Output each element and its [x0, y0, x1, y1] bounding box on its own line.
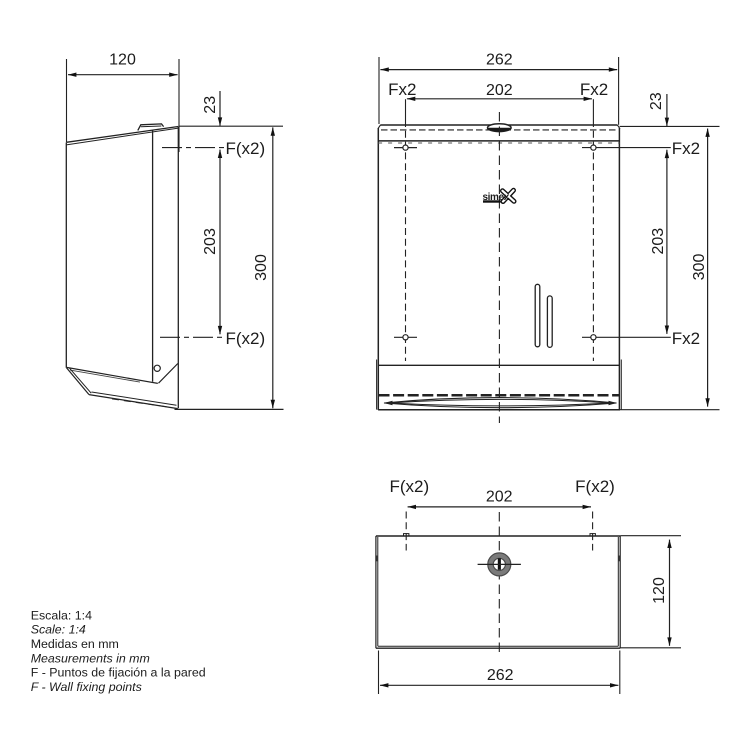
svg-text:203: 203: [202, 228, 219, 255]
svg-text:F(x2): F(x2): [389, 477, 429, 496]
svg-text:120: 120: [109, 51, 136, 68]
svg-text:Scale: 1:4: Scale: 1:4: [31, 623, 86, 637]
svg-text:Medidas en mm: Medidas en mm: [31, 637, 119, 651]
svg-text:262: 262: [486, 51, 513, 68]
svg-text:F - Wall fixing points: F - Wall fixing points: [31, 680, 142, 694]
svg-text:300: 300: [691, 254, 708, 281]
svg-text:F(x2): F(x2): [575, 477, 615, 496]
svg-text:203: 203: [650, 228, 667, 255]
svg-text:23: 23: [648, 92, 665, 110]
svg-text:Measurements in mm: Measurements in mm: [31, 651, 150, 665]
svg-text:23: 23: [202, 96, 219, 114]
svg-text:F(x2): F(x2): [226, 139, 266, 158]
svg-text:F(x2): F(x2): [226, 329, 266, 348]
svg-text:Fx2: Fx2: [672, 139, 700, 158]
svg-text:Fx2: Fx2: [672, 329, 700, 348]
svg-text:120: 120: [651, 577, 668, 604]
svg-text:300: 300: [253, 254, 270, 281]
svg-text:Escala: 1:4: Escala: 1:4: [31, 608, 92, 622]
svg-text:202: 202: [486, 82, 513, 99]
svg-text:Fx2: Fx2: [388, 80, 416, 99]
svg-text:F - Puntos de fijación a la pa: F - Puntos de fijación a la pared: [31, 666, 206, 680]
svg-text:262: 262: [487, 667, 514, 684]
svg-text:202: 202: [486, 489, 513, 506]
svg-text:Fx2: Fx2: [580, 80, 608, 99]
